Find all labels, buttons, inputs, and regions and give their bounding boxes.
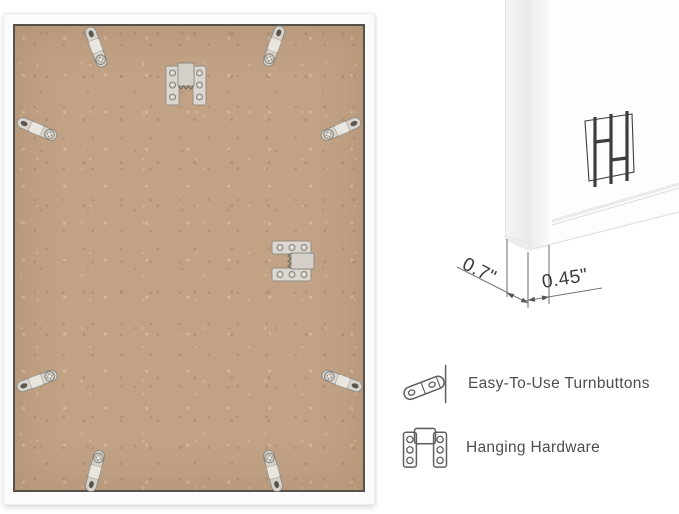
turnbutton-mid-right [320, 116, 363, 143]
face-width-dimension-label: 0.45" [540, 265, 589, 293]
product-image: 0.7" 0.45" Easy-To-Use Turnbuttons [0, 0, 679, 514]
moulding-front-band [528, 0, 552, 250]
turnbutton-top-right [262, 24, 287, 67]
turnbutton-bottom-right [262, 449, 283, 492]
sawtooth-hanger-top [166, 63, 206, 105]
frame-corner-profile: 0.7" 0.45" [430, 0, 679, 332]
frame-back-view [3, 13, 375, 505]
turnbutton-top-left [84, 25, 109, 68]
turnbutton-icon [402, 363, 450, 405]
feature-hanging-hardware: Hanging Hardware [402, 426, 672, 470]
hanging-hardware-icon [402, 427, 448, 469]
depth-dimension-label: 0.7" [459, 254, 500, 289]
sawtooth-hanger-middle [272, 241, 314, 281]
feature-label: Easy-To-Use Turnbuttons [468, 375, 650, 393]
turnbutton-bottom-left [84, 449, 105, 492]
feature-list: Easy-To-Use Turnbuttons Hanging Hardware [402, 362, 672, 490]
feature-label: Hanging Hardware [466, 439, 600, 457]
turnbutton-lower-left [15, 369, 58, 394]
hardware-layer [4, 14, 376, 506]
turnbutton-lower-right [320, 369, 363, 394]
turnbutton-mid-left [16, 116, 59, 143]
moulding-side-band [505, 0, 531, 244]
feature-turnbuttons: Easy-To-Use Turnbuttons [402, 362, 672, 406]
